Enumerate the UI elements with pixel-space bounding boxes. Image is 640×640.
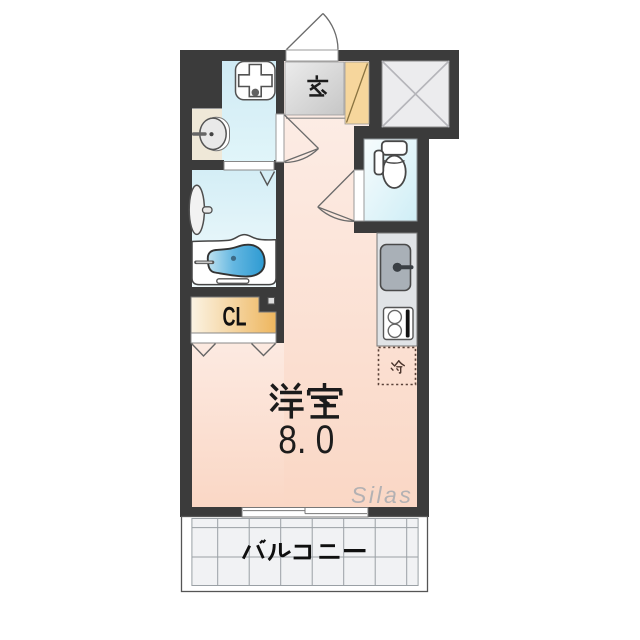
svg-text:8. 0: 8. 0	[278, 417, 334, 461]
svg-text:Silas: Silas	[351, 482, 413, 508]
svg-text:CL: CL	[223, 301, 247, 331]
